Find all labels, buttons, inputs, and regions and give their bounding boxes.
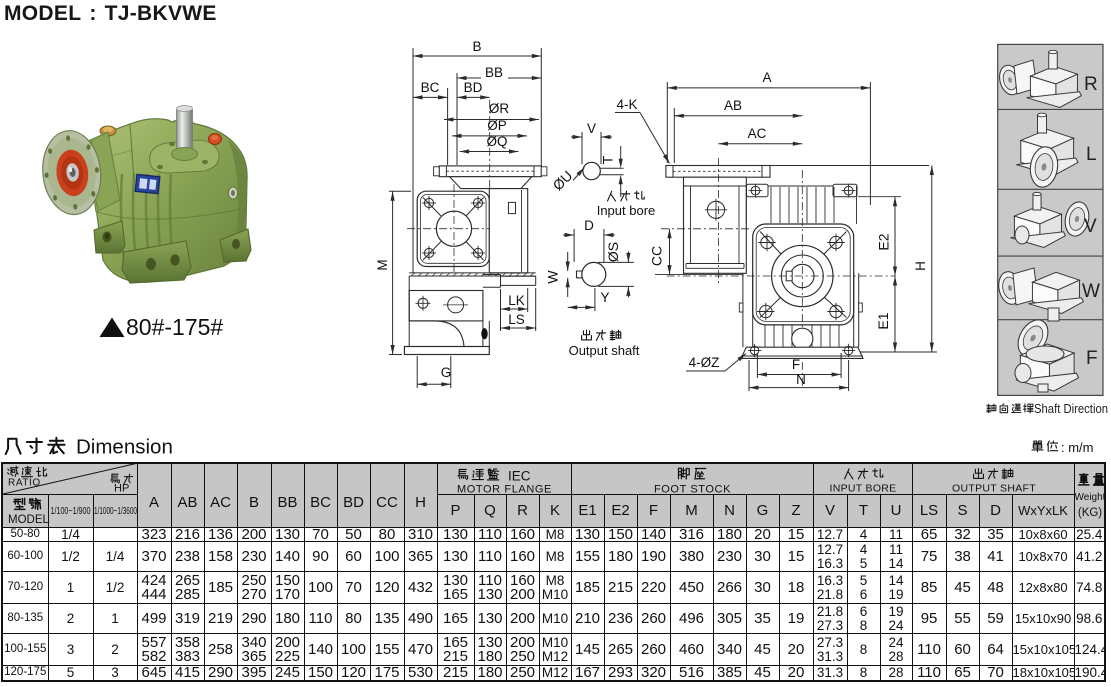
svg-text:Dimension: Dimension — [76, 436, 173, 459]
svg-text:L: L — [1086, 144, 1097, 165]
svg-text:ØP: ØP — [487, 118, 507, 133]
svg-text:80#-175#: 80#-175# — [126, 314, 223, 340]
svg-text:4-K: 4-K — [616, 97, 637, 112]
svg-text:(KG): (KG) — [1078, 507, 1102, 519]
svg-text:OUTPUT SHAFT: OUTPUT SHAFT — [952, 483, 1036, 495]
svg-text:Output shaft: Output shaft — [569, 343, 640, 358]
svg-text:ØS: ØS — [605, 242, 621, 262]
svg-text:4-ØZ: 4-ØZ — [689, 355, 720, 370]
svg-text:1/1000~1/3600: 1/1000~1/3600 — [94, 505, 137, 517]
svg-text:Weight: Weight — [1075, 492, 1106, 503]
svg-text:AC: AC — [748, 126, 767, 141]
svg-text:Shaft Direction: Shaft Direction — [1034, 402, 1108, 416]
svg-text:F: F — [792, 357, 800, 372]
svg-text:N: N — [796, 372, 806, 387]
svg-text:BC: BC — [421, 80, 440, 95]
svg-text:M: M — [375, 259, 390, 270]
svg-text:LK: LK — [508, 293, 525, 308]
svg-text:ØU: ØU — [549, 167, 575, 193]
svg-text:F: F — [1086, 348, 1098, 369]
svg-text:W: W — [1082, 281, 1100, 302]
svg-text:RATIO: RATIO — [8, 478, 41, 489]
svg-text:ØR: ØR — [489, 101, 510, 116]
svg-text:BB: BB — [485, 65, 503, 80]
svg-text:V: V — [1084, 216, 1097, 237]
svg-text:T: T — [600, 155, 616, 164]
svg-text:HP: HP — [114, 483, 129, 495]
svg-text:MODEL: MODEL — [8, 514, 50, 526]
svg-text:IEC: IEC — [508, 469, 531, 484]
svg-text:CC: CC — [649, 246, 665, 266]
svg-text:Y: Y — [600, 290, 609, 305]
svg-text:B: B — [472, 39, 481, 54]
svg-text:E2: E2 — [876, 233, 892, 250]
svg-text:E1: E1 — [875, 312, 891, 329]
svg-text:G: G — [441, 365, 452, 380]
svg-text:BD: BD — [464, 80, 483, 95]
svg-text:A: A — [762, 70, 771, 85]
svg-text:V: V — [587, 121, 596, 136]
svg-text:LS: LS — [508, 312, 525, 327]
svg-text:: m/m: : m/m — [1061, 440, 1094, 455]
svg-text:INPUT BORE: INPUT BORE — [830, 483, 897, 495]
svg-text:W: W — [545, 270, 561, 284]
svg-text:D: D — [584, 218, 594, 233]
svg-text:Input bore: Input bore — [597, 203, 656, 218]
svg-text:H: H — [913, 261, 928, 271]
svg-text:1/100~1/900: 1/100~1/900 — [51, 505, 91, 517]
svg-text:AB: AB — [724, 98, 742, 113]
svg-text:FOOT STOCK: FOOT STOCK — [654, 484, 731, 496]
svg-text:R: R — [1084, 74, 1098, 95]
svg-text:MOTOR FLANGE: MOTOR FLANGE — [457, 484, 552, 496]
